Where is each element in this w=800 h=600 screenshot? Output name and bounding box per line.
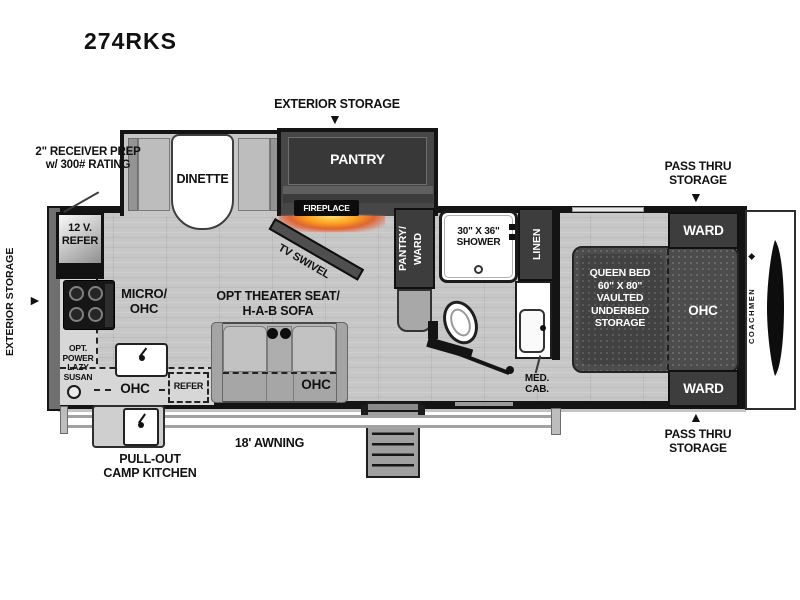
receiver-line1: 2" RECEIVER PREP <box>24 146 152 159</box>
exterior-storage-top-label: EXTERIOR STORAGE <box>258 97 416 111</box>
bedroom-window <box>572 207 644 212</box>
wardrobe-bottom: WARD <box>668 370 739 407</box>
receiver-line2: w/ 300# RATING <box>24 159 152 172</box>
ward-top-label: WARD <box>670 223 737 238</box>
receiver-prep-label: 2" RECEIVER PREP w/ 300# RATING <box>24 146 152 172</box>
linen-label: LINEN <box>520 210 554 279</box>
pass-thru-bottom-label: PASS THRU STORAGE <box>654 428 742 455</box>
shower-drain <box>474 265 483 274</box>
bathroom-door-handle <box>506 366 514 374</box>
pantry-ward-cabinet: PANTRY/ WARD <box>394 208 435 289</box>
pass-thru-top-label: PASS THRU STORAGE <box>654 160 742 187</box>
sofa-ohc-label: OHC <box>296 377 336 392</box>
vanity-sink <box>519 309 545 353</box>
wardrobe-top: WARD <box>668 212 739 249</box>
bed-line2: 60" X 80" <box>574 280 666 293</box>
stove-burner-3 <box>88 286 103 301</box>
entry-side-window <box>455 402 513 406</box>
camp-kitchen-label: PULL-OUT CAMP KITCHEN <box>90 452 210 481</box>
camp-kitchen-line2: CAMP KITCHEN <box>90 466 210 480</box>
shower-label: 30" X 36" SHOWER <box>441 226 516 249</box>
queen-bed-label: QUEEN BED 60" X 80" VAULTED UNDERBED STO… <box>574 267 666 330</box>
sofa-armrest-right <box>336 322 348 403</box>
sofa-seat-left <box>223 326 267 372</box>
fireplace-label: FIREPLACE <box>294 204 359 214</box>
floorplan-canvas: 274RKS DINETTE PANTRY FIREPLACE TV SWIVE… <box>0 0 800 600</box>
bed-ohc-label: OHC <box>669 303 737 318</box>
bed-line1: QUEEN BED <box>574 267 666 280</box>
refer-counter-strip <box>56 266 104 279</box>
pass-thru-bottom-line1: PASS THRU <box>654 428 742 442</box>
micro-line1: MICRO/ <box>112 287 176 302</box>
theater-line1: OPT THEATER SEAT/ <box>200 289 356 304</box>
arrow-down-icon-pantry: ▼ <box>328 112 342 126</box>
refer-cabinet-label: REFER <box>168 381 209 391</box>
rear-bumper-blade <box>761 238 787 378</box>
refer-12v-line1: 12 V. <box>56 222 104 235</box>
sofa-seam-left <box>266 374 267 401</box>
arrow-right-icon-storage: ► <box>28 293 42 307</box>
stove-burner-4 <box>88 307 103 322</box>
bathroom-bedroom-wall <box>552 208 560 360</box>
sofa-cupholder-right <box>280 328 291 339</box>
refer-12v-label: 12 V. REFER <box>56 222 104 247</box>
camp-kitchen-line1: PULL-OUT <box>90 452 210 466</box>
coachmen-logo-icon: ◆ <box>747 253 756 260</box>
micro-line2: OHC <box>112 302 176 317</box>
theater-line2: H-A-B SOFA <box>200 304 356 319</box>
sofa-seam-right <box>293 374 294 401</box>
shower-control-1 <box>509 224 515 230</box>
med-cab-label: MED. CAB. <box>516 373 558 396</box>
lazy-susan-circle <box>67 385 81 399</box>
lazy-line4: SUSAN <box>57 373 99 383</box>
pantry-ward-base-cabinet <box>397 289 432 332</box>
arrow-down-icon-passthru: ▼ <box>689 190 703 204</box>
dinette-bench-right <box>238 138 270 211</box>
arrow-up-icon-passthru: ▲ <box>689 410 703 424</box>
bed-line3: VAULTED <box>574 292 666 305</box>
med-cab-line2: CAB. <box>516 384 558 395</box>
sofa-seat-right <box>292 326 336 372</box>
entry-step-lip <box>368 404 418 412</box>
ward-bottom-label: WARD <box>670 381 737 396</box>
awning-cap-left <box>60 406 68 434</box>
awning-cap-right <box>551 408 561 435</box>
pantry-label: PANTRY <box>288 152 427 168</box>
refer-12v-line2: REFER <box>56 235 104 248</box>
ohc-dash-left <box>94 389 111 391</box>
pantry-ward-line1: PANTRY/ <box>397 226 409 271</box>
pass-thru-bottom-line2: STORAGE <box>654 442 742 456</box>
kitchen-ohc-label: OHC <box>111 381 159 396</box>
stove-burner-2 <box>69 307 84 322</box>
pantry-ward-line2: WARD <box>412 232 424 264</box>
sofa-cupholder-left <box>267 328 278 339</box>
micro-ohc-label: MICRO/ OHC <box>112 287 176 317</box>
entry-steps <box>366 402 420 478</box>
shower-line1: 30" X 36" <box>441 226 516 237</box>
coachmen-brand-label: COACHMEN <box>747 268 759 364</box>
theater-seat-label: OPT THEATER SEAT/ H-A-B SOFA <box>200 289 356 319</box>
vanity-faucet-icon <box>540 325 546 331</box>
stove-burner-1 <box>69 286 84 301</box>
pass-thru-top-line1: PASS THRU <box>654 160 742 174</box>
toilet-bowl-inner <box>446 305 474 339</box>
exterior-storage-left-label: EXTERIOR STORAGE <box>4 246 20 358</box>
lazy-susan-label: OPT. POWER LAZY SUSAN <box>57 344 99 383</box>
shower-line2: SHOWER <box>441 237 516 248</box>
page-title: 274RKS <box>84 28 177 54</box>
bed-line4: UNDERBED <box>574 305 666 318</box>
pass-thru-top-line2: STORAGE <box>654 174 742 188</box>
bed-line5: STORAGE <box>574 317 666 330</box>
pantry-ward-label: PANTRY/ WARD <box>396 210 433 287</box>
linen-cabinet: LINEN <box>518 208 556 281</box>
shower-control-2 <box>509 234 515 240</box>
pantry-shelf <box>283 186 433 194</box>
dinette-label: DINETTE <box>171 172 234 186</box>
med-cab-line1: MED. <box>516 373 558 384</box>
awning-label: 18' AWNING <box>222 436 317 450</box>
sofa-armrest-left <box>211 322 223 403</box>
